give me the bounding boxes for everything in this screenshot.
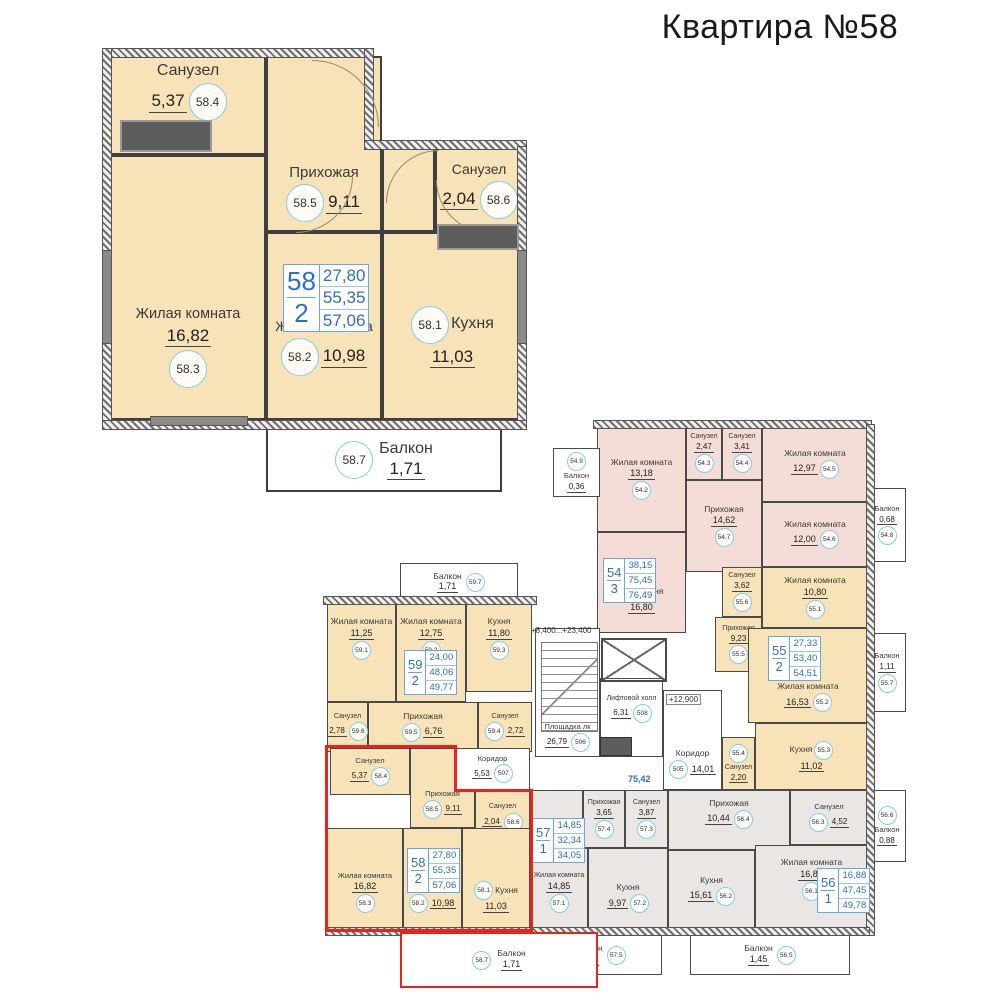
window <box>517 250 527 344</box>
room-id-badge: 57.3 <box>637 820 656 839</box>
room-id-badge: 58.2 <box>409 894 428 913</box>
apartment-info-56: 56 1 16,88 47,45 49,78 <box>817 868 870 913</box>
floor-area: 53,40 <box>790 652 820 667</box>
total-area: 57,06 <box>320 310 369 331</box>
living-area: 16,88 <box>839 869 869 884</box>
room-57-hall: Прихожая 3,65 57.4 <box>583 790 625 848</box>
room-id-badge: 58.7 <box>335 441 373 479</box>
floor-area: 32,34 <box>554 834 584 849</box>
room-name: Балкон <box>564 472 589 481</box>
room-55-wc2: Санузел 3,62 55.6 <box>722 567 762 617</box>
room-area-value: 11,03 <box>483 901 509 913</box>
total-area: 76,49 <box>625 589 655 603</box>
apartment-number: 59 <box>408 657 422 674</box>
room-area-value: 0,88 <box>877 836 897 847</box>
room-id-badge: 59.7 <box>466 573 485 592</box>
apartment-rooms-count: 2 <box>412 673 419 689</box>
apartment-rooms-count: 2 <box>415 871 422 887</box>
room-54-hall: Прихожая 14,62 54.7 <box>686 480 762 572</box>
room-name: Балкон <box>874 652 899 661</box>
room-d58-balcony: 58.7 Балкон 1,71 <box>266 428 502 492</box>
room-name: Жилая комната <box>781 858 842 868</box>
total-area: 49,78 <box>839 899 869 913</box>
room-id-badge: 58.5 <box>423 800 442 819</box>
room-area-value: 9,97 <box>607 898 629 910</box>
room-area-value: 14,85 <box>546 881 573 893</box>
room-55-living1: Жилая комната 10,80 55.1 <box>762 567 868 628</box>
room-id-badge: 54.3 <box>695 454 714 473</box>
room-area-value: 12,97 <box>791 463 818 475</box>
room-area-value: 2,72 <box>506 726 526 737</box>
room-57-kitchen: Кухня 9,97 57.2 <box>588 848 668 932</box>
room-id-badge: 57.5 <box>607 946 626 965</box>
room-name: Санузел <box>725 764 752 772</box>
living-area: 24,00 <box>426 651 456 666</box>
room-54-wc2: Санузел 3,41 54.4 <box>722 426 762 480</box>
room-area-value: 2,04 <box>482 817 502 828</box>
room-59-wc2: Санузел 59.4 2,72 <box>478 702 532 752</box>
room-id-badge: 54.6 <box>820 530 839 549</box>
room-id-badge: 55.4 <box>729 744 748 763</box>
apartment-info-59: 59 2 24,00 48,06 49,77 <box>404 650 457 695</box>
room-name: Санузел <box>491 713 518 721</box>
room-name: Жилая комната <box>784 520 845 530</box>
room-name: Жилая комната <box>784 449 845 459</box>
room-name: Санузел <box>157 62 219 80</box>
room-id-badge: 57.1 <box>550 894 569 913</box>
room-id-badge: 56.5 <box>777 946 796 965</box>
room-area-value: 3,41 <box>732 442 752 453</box>
room-name: Коридор <box>478 755 508 764</box>
apartment-rooms-count: 2 <box>294 298 308 329</box>
room-area-value: 10,98 <box>430 898 457 910</box>
room-area-value: 1,11 <box>878 662 897 673</box>
room-id-badge: 59.6 <box>349 722 368 741</box>
room-area-value: 16,82 <box>165 326 212 347</box>
room-54-wc1: Санузел 2,47 54.3 <box>686 426 722 480</box>
room-name: Кухня <box>617 883 640 893</box>
room-area-value: 3,62 <box>732 581 752 592</box>
room-name: Балкон <box>433 572 462 582</box>
room-area-value: 16,53 <box>784 697 811 709</box>
room-id-badge: 58.1 <box>411 306 449 344</box>
room-id-badge: 506 <box>571 733 590 752</box>
room-54-balcony2: 54.9 Балкон 0,36 <box>553 448 600 497</box>
room-56-wc: Санузел 56.3 4,52 <box>790 790 868 845</box>
room-name: Санузел <box>355 757 384 766</box>
floor-plan-page: Квартира №58 Санузел 5,37 58.4 Прихожая … <box>0 0 1000 1000</box>
apartment-info-57: 57 1 14,85 32,34 34,05 <box>532 818 585 863</box>
room-area-value: 16,82 <box>352 881 379 893</box>
room-57-wc: Санузел 3,87 57.3 <box>625 790 668 848</box>
room-58f-wc1: Санузел 5,37 58.4 <box>330 748 410 795</box>
room-name: Санузел <box>728 433 755 441</box>
room-area-value: 6,31 <box>611 708 631 719</box>
room-name: Жилая комната <box>136 306 241 323</box>
apartment-info-55: 55 2 27,33 53,40 54,51 <box>768 636 821 681</box>
room-56-balcony1: Балкон 1,45 56.5 <box>690 935 850 975</box>
room-id-badge: 57.2 <box>630 894 649 913</box>
room-id-badge: 54.4 <box>733 454 752 473</box>
room-id-badge: 507 <box>494 764 513 783</box>
elevation-label-stairs: +8,400...+23,400 <box>531 626 592 635</box>
room-area-value: 9,23 <box>729 634 749 645</box>
room-id-badge: 54.9 <box>567 452 586 471</box>
room-area-value: 10,44 <box>705 813 732 825</box>
room-area-value: 14,62 <box>711 515 738 527</box>
room-55-wc1: 55.4 Санузел 2,20 <box>722 737 755 790</box>
room-56-kitchen: Кухня 15,61 56.2 <box>668 850 755 932</box>
room-id-badge: 56.6 <box>878 806 897 825</box>
total-area: 34,05 <box>554 849 584 863</box>
floor-area: 48,06 <box>426 666 456 681</box>
apartment-58-highlight-outline <box>530 789 533 932</box>
room-name: Прихожая <box>709 799 748 809</box>
room-name: Прихожая <box>403 712 442 722</box>
room-name: Жилая комната <box>777 682 838 692</box>
apartment-58-highlight-outline <box>325 745 328 932</box>
apartment-info-54: 54 3 38,15 75,45 76,49 <box>603 558 656 603</box>
room-area-value: 5,53 <box>472 769 492 780</box>
room-id-badge: 55.1 <box>806 600 825 619</box>
wall-hatch <box>593 420 872 429</box>
wall-hatch <box>364 140 527 150</box>
room-id-badge: 59.4 <box>485 722 504 741</box>
room-name: Санузел <box>334 713 361 721</box>
room-id-badge: 59.1 <box>352 641 371 660</box>
room-name: Санузел <box>690 433 717 441</box>
room-54-living3: Жилая комната 12,00 54.6 <box>762 502 868 567</box>
room-area-value: 5,37 <box>149 91 186 112</box>
room-name: Лифтовой холл <box>607 695 657 703</box>
room-name: Санузел <box>728 572 755 580</box>
floor-area: 55,35 <box>320 287 369 309</box>
room-id-badge: 55.2 <box>813 693 832 712</box>
room-id-badge: 58.7 <box>472 951 491 970</box>
stairs <box>541 642 598 732</box>
room-name: Санузел <box>814 803 843 812</box>
apartment-rooms-count: 1 <box>825 891 832 907</box>
wall-hatch <box>102 48 112 430</box>
room-id-badge: 55.5 <box>729 645 748 664</box>
total-area: 54,51 <box>790 667 820 681</box>
room-name: Балкон <box>874 505 899 514</box>
room-59-living1: Жилая комната 11,25 59.1 <box>327 602 396 702</box>
room-area-value: 0,36 <box>567 482 587 493</box>
room-area-value: 14,01 <box>690 764 717 776</box>
room-54-living1: Жилая комната 13,18 54.2 <box>597 426 686 532</box>
total-area: 49,77 <box>426 681 456 695</box>
room-name: Жилая комната <box>338 872 392 881</box>
room-d58-living1: Жилая комната 16,82 58.3 <box>110 155 266 420</box>
room-id-badge: 56.2 <box>716 887 735 906</box>
room-area-value: 5,37 <box>350 771 370 782</box>
room-area-value: 2,47 <box>694 442 714 453</box>
room-id-badge: 59.5 <box>402 723 421 742</box>
apartment-number: 56 <box>821 875 835 892</box>
room-name: Жилая комната <box>534 872 585 880</box>
room-id-badge: 55.3 <box>814 741 833 760</box>
room-name: Коридор <box>676 749 710 759</box>
floor-area: 75,45 <box>625 574 655 589</box>
room-name: Кухня <box>700 876 723 886</box>
window <box>150 416 248 426</box>
room-id-badge: 58.3 <box>356 894 375 913</box>
room-id-badge: 54.2 <box>632 481 651 500</box>
apartment-number: 54 <box>607 565 621 582</box>
room-id-badge: 58.4 <box>371 767 390 786</box>
room-area-value: 12,75 <box>418 628 445 640</box>
room-name: Балкон <box>874 826 899 835</box>
wall-hatch <box>866 424 875 936</box>
room-name: Жилая комната <box>611 458 672 468</box>
room-area-value: 13,18 <box>628 468 655 480</box>
room-id-badge: 54.8 <box>878 526 897 545</box>
room-area-value: 9,11 <box>444 804 463 815</box>
room-id-badge: 58.4 <box>189 83 227 121</box>
room-58f-living1: Жилая комната 16,82 58.3 <box>327 828 403 928</box>
room-name: Прихожая <box>704 505 743 515</box>
living-area: 38,15 <box>625 559 655 574</box>
room-id-badge: 58.3 <box>169 350 207 388</box>
room-area-value: 15,61 <box>688 890 715 902</box>
apartment-info-58-detail: 58 2 27,80 55,35 57,06 <box>283 264 369 332</box>
room-id-badge: 54.5 <box>820 460 839 479</box>
apartment-rooms-count: 2 <box>776 659 783 675</box>
living-area: 27,80 <box>429 849 459 864</box>
room-name: Санузел <box>452 161 507 177</box>
room-area-value: 1,71 <box>387 459 424 480</box>
apartment-rooms-count: 1 <box>540 841 547 857</box>
bathtub <box>437 224 519 250</box>
room-area-value: 11,25 <box>349 628 375 640</box>
electrical-box <box>600 737 632 756</box>
room-id-badge: 56.3 <box>809 813 828 832</box>
room-59-kitchen: Кухня 11,80 59.3 <box>466 602 532 692</box>
living-area: 27,80 <box>320 265 369 287</box>
room-56-hall: Прихожая 10,44 56.4 <box>668 790 790 850</box>
apartment-rooms-count: 3 <box>611 581 618 597</box>
room-name: Балкон <box>497 949 526 959</box>
room-name: Санузел <box>489 803 516 811</box>
room-id-badge: 57.4 <box>595 820 614 839</box>
elevator-shaft <box>601 638 667 682</box>
room-d58-kitchen: 58.1 Кухня 11,03 <box>382 232 523 420</box>
room-id-badge: 54.7 <box>715 528 734 547</box>
room-area-value: 2,20 <box>729 773 749 784</box>
room-id-badge: 55.6 <box>733 593 752 612</box>
room-area-value: 10,80 <box>802 587 829 599</box>
living-area: 27,33 <box>790 637 820 652</box>
window <box>102 250 112 344</box>
room-id-badge: 58.2 <box>281 338 319 376</box>
room-area-value: 16,80 <box>628 602 655 614</box>
apartment-number: 58 <box>287 266 316 298</box>
room-name: Кухня <box>790 745 813 755</box>
apartment-58-highlight-outline <box>454 745 457 792</box>
room-area-value: 2,78 <box>327 726 347 737</box>
room-id-badge: 508 <box>633 704 652 723</box>
room-name: Жилая комната <box>784 576 845 586</box>
apartment-number: 55 <box>772 643 786 660</box>
room-area-value: 1,71 <box>501 959 523 971</box>
room-name: Жилая комната <box>331 617 392 627</box>
apartment-number: 57 <box>536 825 550 842</box>
room-area-value: 1,71 <box>437 581 459 593</box>
common-area-total-label: 75,42 <box>628 774 651 784</box>
room-54-living2: Жилая комната 12,97 54.5 <box>762 426 868 502</box>
room-name: Кухня <box>495 886 518 896</box>
elevation-label-corridor: +12,900 <box>666 694 701 705</box>
room-id-badge: 56.4 <box>734 810 753 829</box>
room-area-value: 11,03 <box>430 347 475 368</box>
room-name: Балкон <box>379 440 433 458</box>
bathtub <box>120 120 212 152</box>
room-name: Жилая комната <box>400 617 461 627</box>
room-area-value: 11,02 <box>799 761 825 773</box>
room-area-value: 4,52 <box>830 817 850 828</box>
room-name: Санузел <box>633 799 660 807</box>
floor-area: 55,35 <box>429 864 459 879</box>
room-id-badge: 55.7 <box>878 674 897 693</box>
wall-hatch <box>110 48 374 58</box>
room-area-value: 3,87 <box>637 808 657 819</box>
total-area: 57,06 <box>429 879 459 893</box>
living-area: 14,85 <box>554 819 584 834</box>
room-area-value: 11,80 <box>486 628 512 640</box>
room-area-value: 10,98 <box>321 346 368 367</box>
page-title: Квартира №58 <box>570 8 990 47</box>
room-id-badge: 59.3 <box>490 641 509 660</box>
room-area-value: 12,00 <box>791 534 818 546</box>
room-id-badge: 58.1 <box>474 881 493 900</box>
room-name: Прихожая <box>588 799 620 807</box>
room-area-value: 3,65 <box>594 808 614 819</box>
room-area-value: 26,79 <box>545 737 569 748</box>
room-55-kitchen: Кухня 55.3 11,02 <box>755 723 868 790</box>
room-area-value: 6,76 <box>423 726 445 738</box>
apartment-info-58-floor: 58 2 27,80 55,35 57,06 <box>407 848 460 893</box>
room-common-corridor2: Коридор 5,53 507 <box>455 748 530 790</box>
apartment-58-highlight-outline <box>325 929 533 932</box>
apartment-number: 58 <box>411 855 425 872</box>
room-58f-kitchen: 58.1 Кухня 11,03 <box>462 828 530 928</box>
room-area-value: 0,68 <box>877 515 897 526</box>
room-58f-balcony: 58.7 Балкон 1,71 <box>400 932 598 988</box>
room-common-corridor: Коридор 505 14,01 <box>663 690 722 790</box>
room-name: Кухня <box>488 617 511 627</box>
room-area-value: 1,45 <box>748 954 770 966</box>
room-id-badge: 505 <box>669 760 688 779</box>
apartment-58-highlight-outline <box>325 745 457 748</box>
room-name: Балкон <box>744 944 773 954</box>
wall-hatch <box>323 596 537 605</box>
floor-area: 47,45 <box>839 884 869 899</box>
apartment-58-highlight-outline <box>454 789 533 792</box>
room-name: Кухня <box>451 315 494 333</box>
